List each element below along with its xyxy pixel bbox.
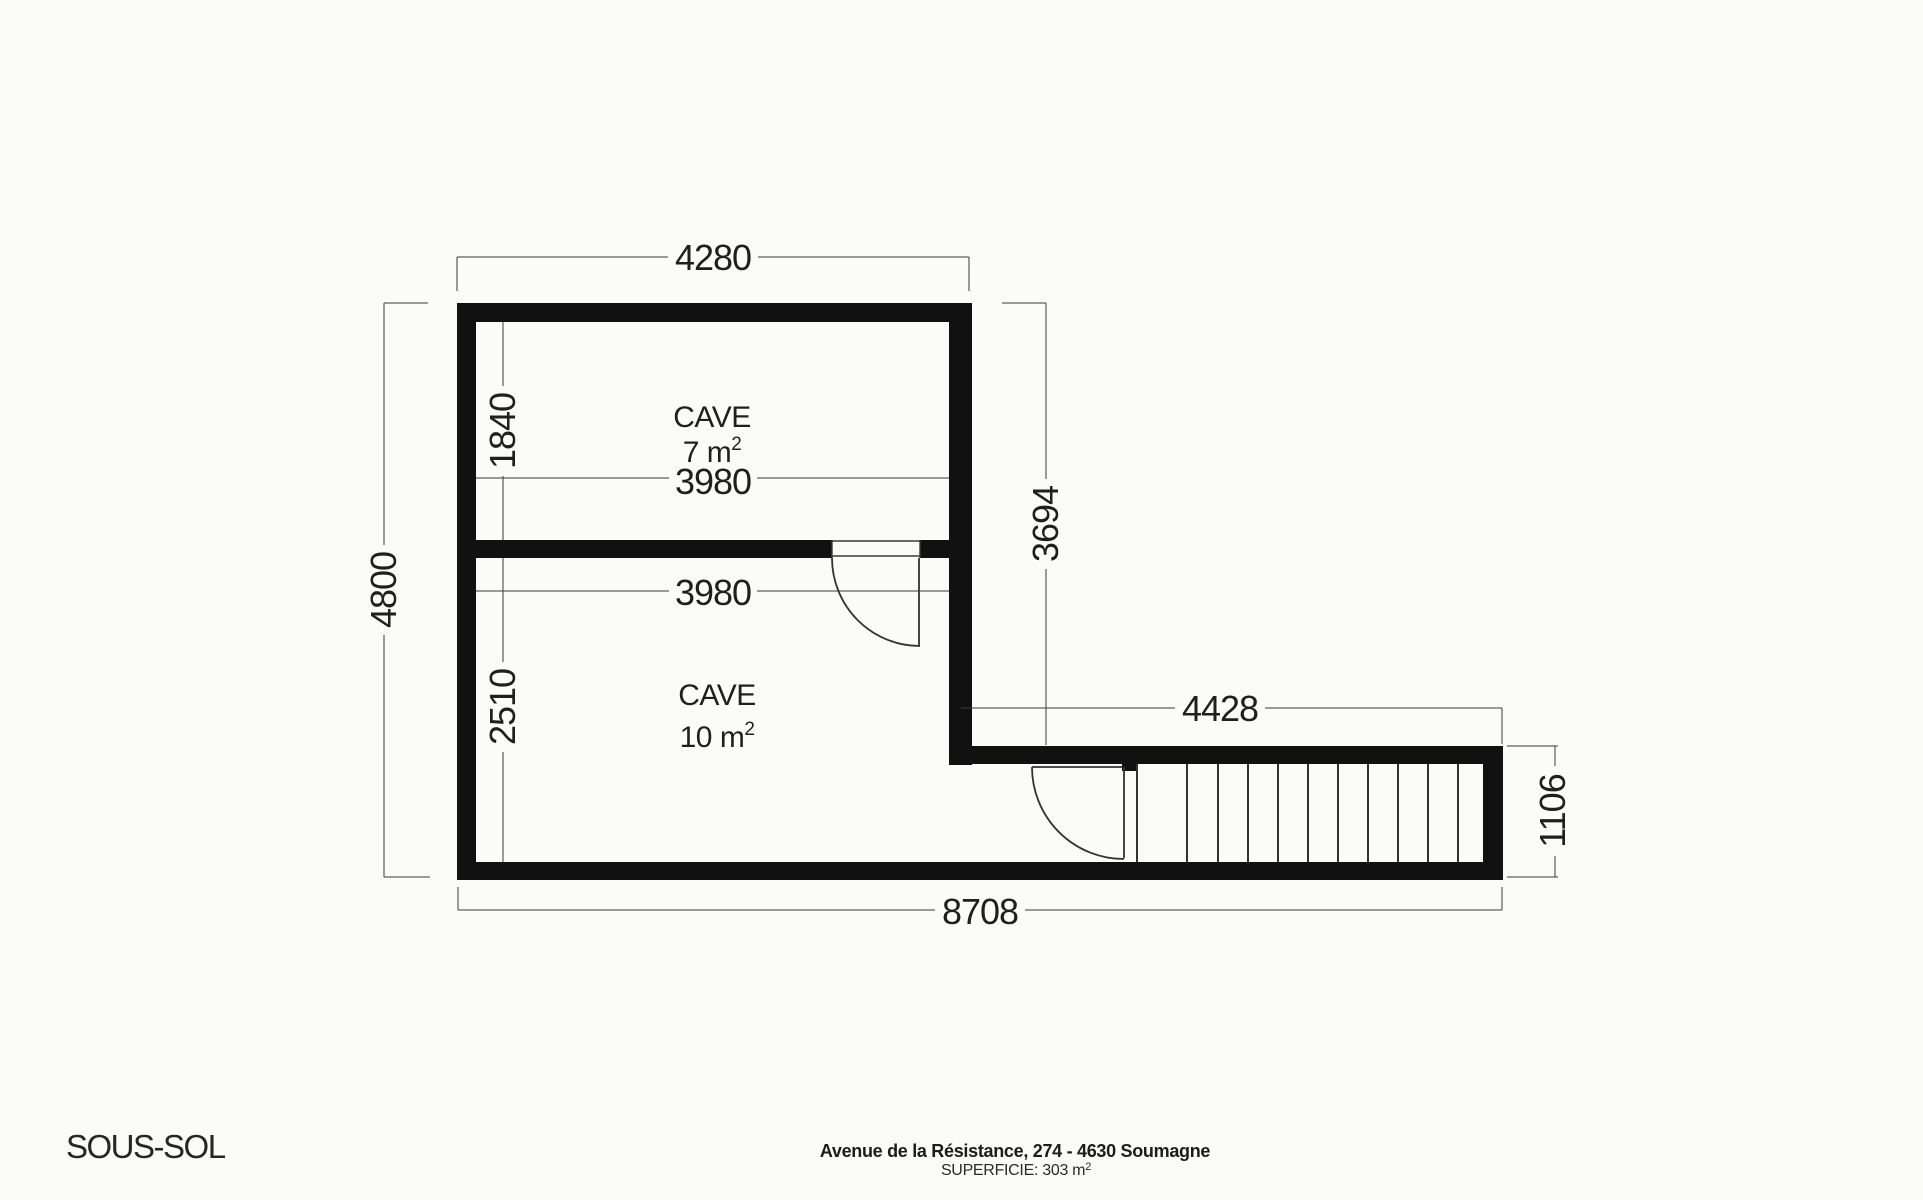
wall-bottom [457,862,1503,880]
wall-middle-right-segment [920,540,949,558]
dim-label-overall-height: 4800 [363,552,404,628]
room-area-value: 7 m [683,436,732,469]
room-label-cave10: CAVE 10 m2 [678,679,755,754]
door-stairs [1032,767,1124,859]
wall-middle-left-segment [476,540,832,558]
wall-stair-corridor-top [949,746,1503,764]
wall-top [457,303,972,322]
dim-label-right-height-group: 3694 [1025,479,1066,569]
stairs [1137,764,1458,862]
room-area-value: 10 m [680,721,745,754]
room-area-cave10: 10 m2 [680,719,755,754]
dim-label-overall-height-group: 4800 [363,545,404,635]
room-label-cave7: CAVE 7 m2 [673,401,750,469]
dim-label-stair-width: 4428 [1182,688,1258,729]
dim-label-stair-height: 1106 [1532,774,1573,847]
room-area-superscript: 2 [744,719,754,740]
wall-left [457,303,476,880]
door-cave-swing-arc [832,558,920,646]
room-name-cave7: CAVE [673,401,750,434]
room-name-cave10: CAVE [678,679,755,712]
door-stairs-swing-arc [1032,767,1124,859]
dim-label-cave7-height-group: 1840 [482,386,523,476]
dim-label-cave10-width: 3980 [675,572,751,613]
dim-label-cave7-height: 1840 [482,393,523,469]
dim-label-right-height: 3694 [1025,486,1066,562]
dim-label-top-width: 4280 [675,237,751,278]
floorplan-canvas: 4280 3980 3980 4428 8708 4800 1840 2510 … [0,0,1923,1200]
wall-right-upper [949,303,972,765]
stair-treads [1137,764,1458,862]
footer-address: Avenue de la Résistance, 274 - 4630 Soum… [820,1141,1211,1161]
door-cave [832,540,920,646]
floor-title: SOUS-SOL [66,1128,226,1165]
dim-label-cave10-height: 2510 [482,669,523,745]
dim-label-overall-width: 8708 [942,891,1018,932]
superficie-value: SUPERFICIE: 303 m [941,1162,1085,1179]
footer-superficie: SUPERFICIE: 303 m2 [941,1161,1091,1179]
dim-label-stair-height-group: 1106 [1532,766,1573,856]
room-area-superscript: 2 [731,434,741,455]
wall-stair-corridor-right [1483,746,1503,880]
superficie-superscript: 2 [1085,1161,1091,1173]
dim-label-cave10-height-group: 2510 [482,662,523,752]
